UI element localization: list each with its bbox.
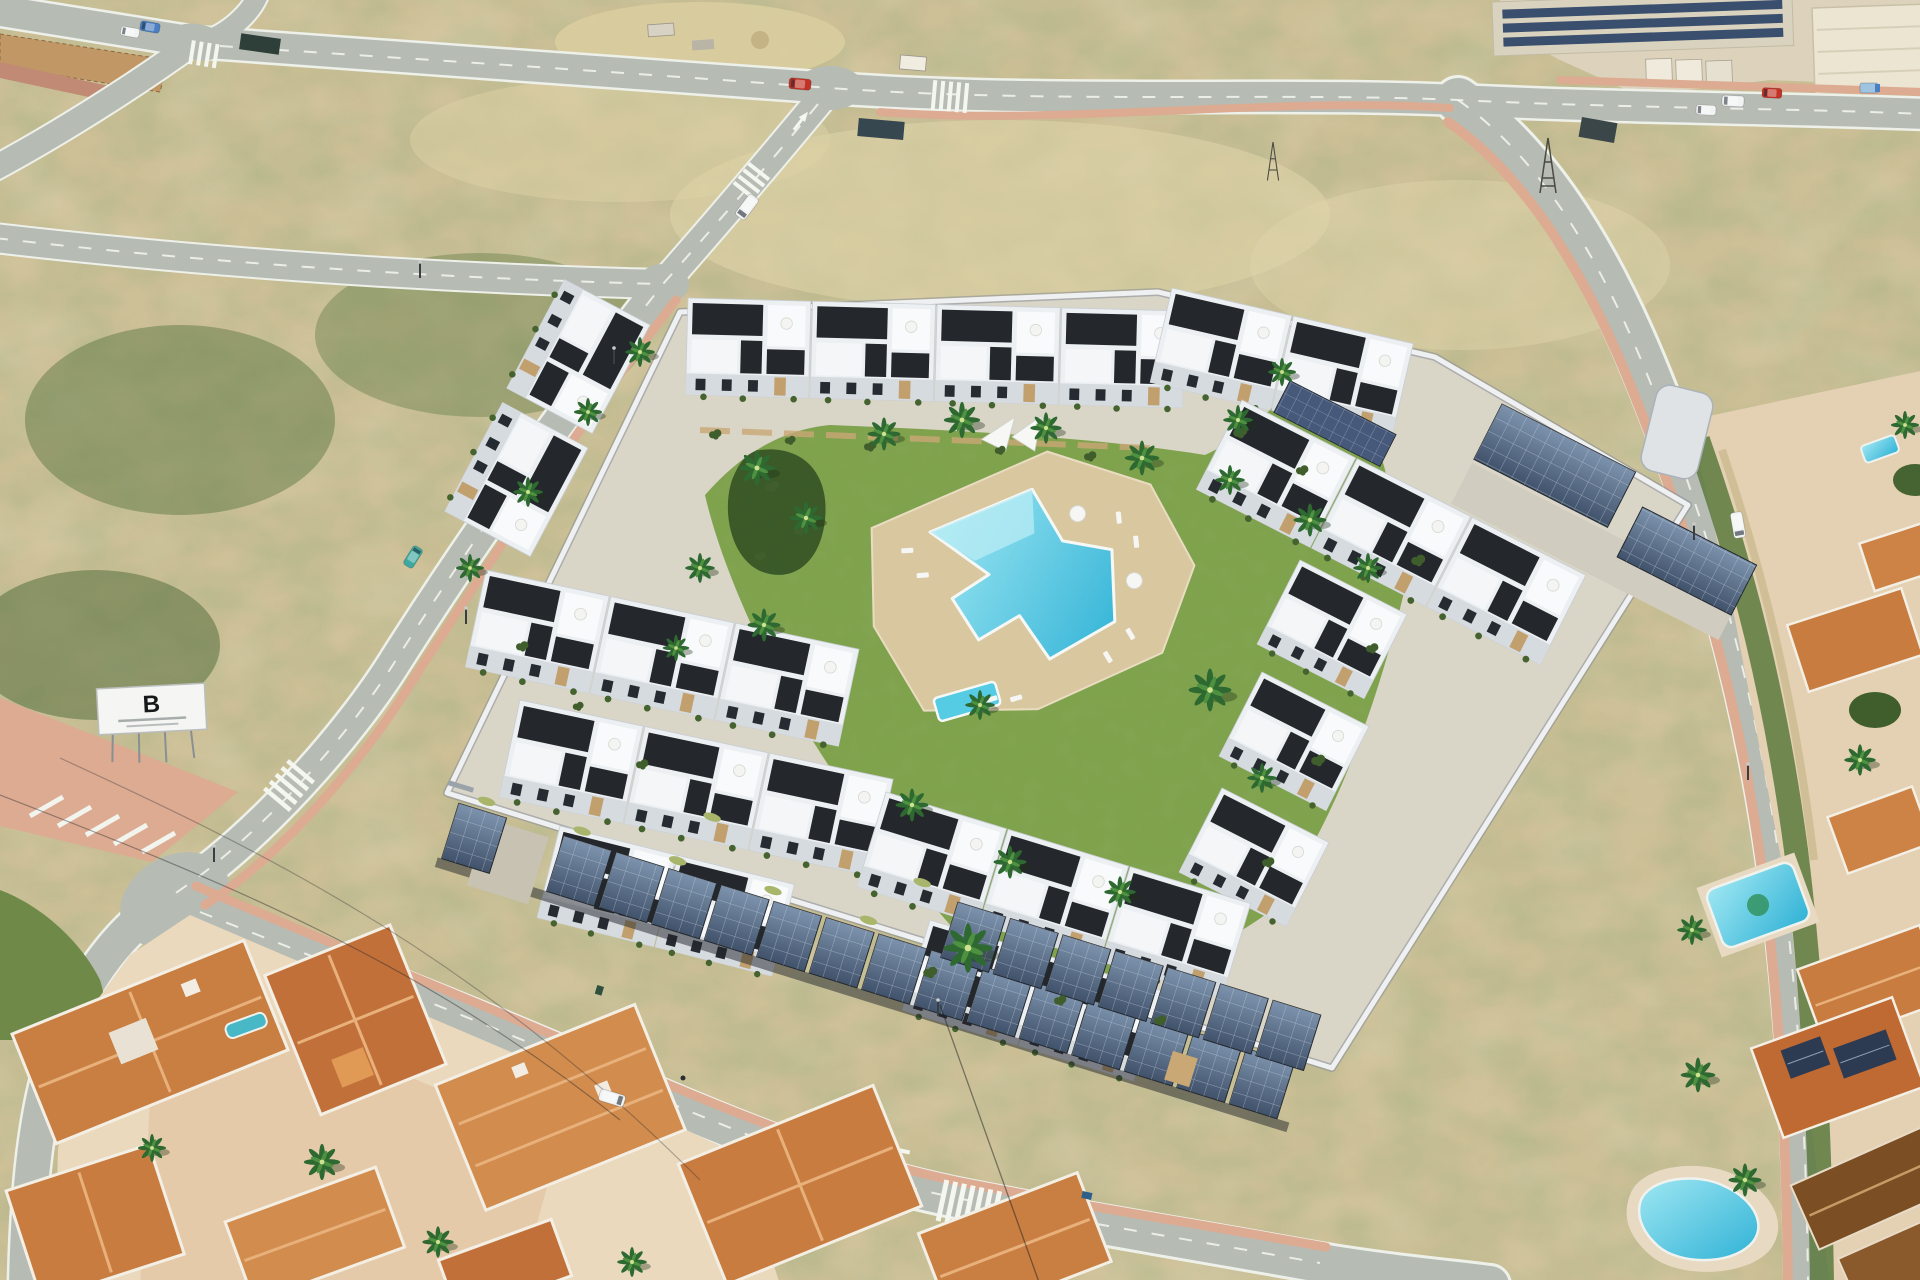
container [692,39,715,51]
billboard-logo: B [142,691,161,719]
pedestrian [681,1076,686,1081]
townhouse-unit [810,301,936,407]
red-car [789,78,812,91]
red-car-east [1762,88,1782,99]
tree [1849,692,1901,728]
kiosk [899,55,926,71]
dirt-mound [751,31,769,49]
aerial-scene: B [0,0,1920,1280]
blue-truck [1860,83,1880,93]
container [648,23,675,37]
warehouse-solar-roof [1492,0,1794,56]
townhouse-unit [685,298,811,404]
silver-car [1696,105,1716,116]
townhouse-unit [935,305,1061,411]
white-car [1722,95,1745,107]
green-patch [25,325,335,515]
warehouse [1812,4,1920,94]
aerial-photo-stage: B [0,0,1920,1280]
